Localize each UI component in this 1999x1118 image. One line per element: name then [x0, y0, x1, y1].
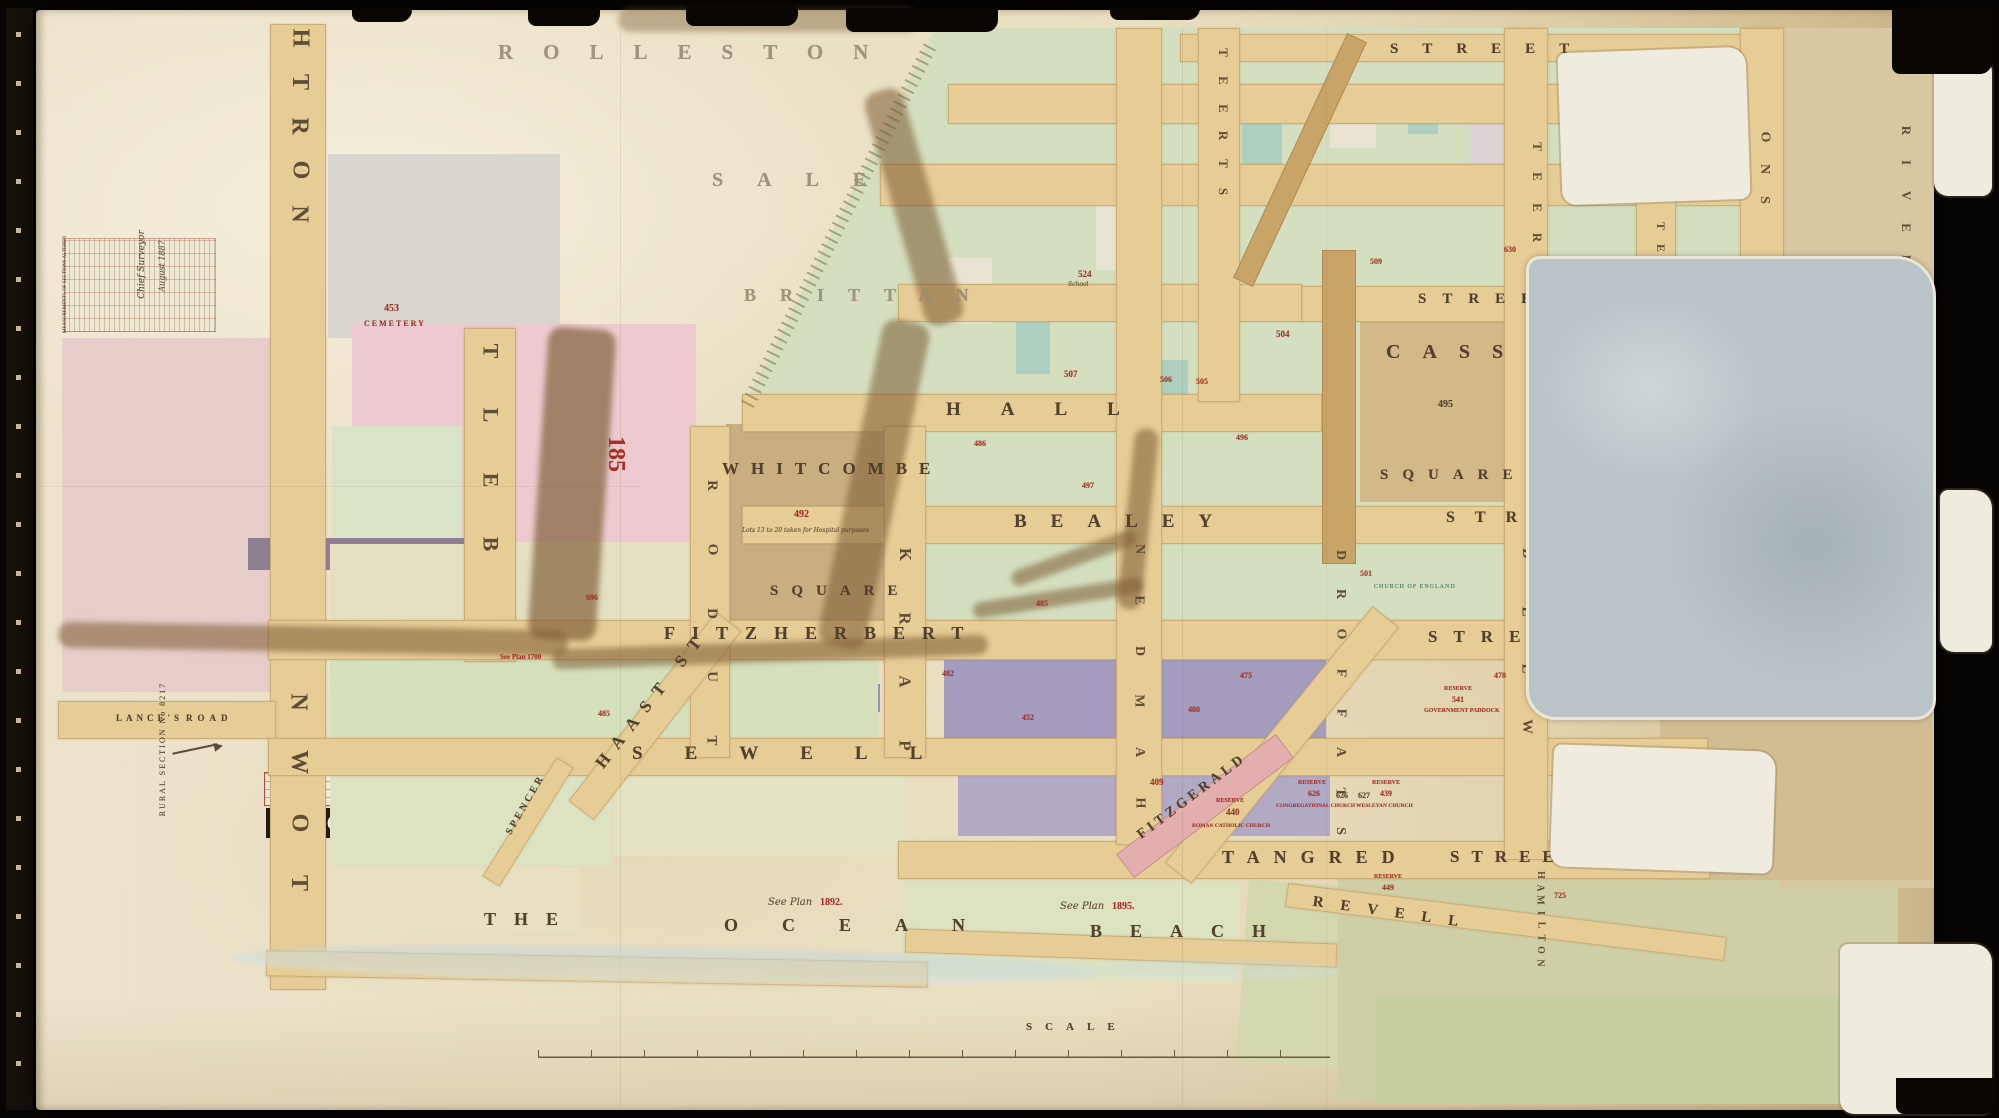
block-number: 449: [1382, 884, 1394, 892]
vertical-letter: R: [1900, 126, 1913, 135]
vertical-letter: F: [1333, 669, 1347, 678]
lances-road-label-2: ROAD: [186, 714, 233, 723]
chief-surveyor-signature: Chief Surveyor: [138, 230, 147, 299]
vertical-letter: B: [479, 537, 501, 552]
brittan-street-label: BRITTAN: [744, 286, 993, 304]
river-label: RIVER: [1894, 124, 1919, 266]
hamilton-street-label: HAMILTON: [1529, 870, 1551, 968]
vertical-letter: E: [1217, 76, 1230, 85]
block-number: 696: [586, 594, 598, 602]
green-rows-a: [332, 426, 462, 544]
beach-wash: [1098, 960, 1340, 980]
vertical-letter: O: [1757, 132, 1771, 143]
cemetery-label: CEMETERY: [364, 320, 426, 328]
table-title: MEASUREMENTS OF SECTIONS ALTERED: [63, 236, 68, 333]
block-number: 485: [1036, 600, 1048, 608]
vertical-letter: T: [1217, 48, 1230, 57]
block-number: 524: [1078, 270, 1092, 279]
vertical-letter: I: [1535, 911, 1545, 915]
block-number: 626: [1336, 792, 1348, 800]
vertical-letter: R: [704, 480, 719, 491]
vertical-letter: O: [288, 161, 312, 180]
see-plan-note: See Plan: [768, 898, 812, 908]
block-number: 453: [384, 304, 399, 314]
scale-bar: [538, 1050, 1330, 1058]
damage-white-edge: [1934, 54, 1992, 196]
vertical-letter: N: [288, 205, 312, 222]
torn-edge-bite: [352, 8, 412, 22]
block-185-number: 185: [604, 436, 628, 472]
vertical-letter: T: [1531, 142, 1544, 151]
vertical-letter: H: [1535, 871, 1545, 879]
vertical-letter: T: [1535, 934, 1545, 941]
street-label-vertical: TEERTS: [1211, 46, 1236, 198]
north-belt-label: HTRON: [282, 26, 318, 226]
vertical-letter: U: [704, 671, 719, 682]
cass-square-label: CASS: [1386, 342, 1525, 362]
block-number: 475: [1240, 672, 1252, 680]
vertical-letter: L: [479, 408, 501, 423]
vertical-letter: T: [1655, 222, 1667, 230]
vertical-letter: E: [1531, 203, 1544, 212]
block-number: 486: [974, 440, 986, 448]
belt-road-label: TLEB: [473, 340, 507, 555]
vertical-letter: T: [1217, 159, 1230, 168]
block-number: 440: [1226, 808, 1240, 817]
vertical-letter: O: [287, 813, 311, 832]
see-plan-note: See Plan: [1060, 902, 1104, 912]
block-number: 627: [1358, 792, 1370, 800]
block-number: 480: [1188, 706, 1200, 714]
reserve-note: RESERVE: [1374, 874, 1402, 880]
ocean-beach-label-ocean: OCEAN: [724, 916, 1009, 934]
vertical-letter: E: [1217, 104, 1230, 113]
hall-street-label: HALL: [946, 400, 1160, 419]
vertical-letter: E: [1132, 595, 1146, 604]
reserve-note: ROMAN CATHOLIC CHURCH: [1192, 824, 1270, 830]
reserve-note: RESERVE: [1298, 780, 1326, 786]
vertical-letter: S: [1757, 196, 1771, 204]
vertical-letter: T: [704, 735, 719, 745]
vertical-letter: [1757, 230, 1771, 234]
block-number: 492: [794, 510, 809, 520]
cemetery-block: [328, 154, 560, 338]
vertical-letter: N: [287, 693, 311, 710]
vertical-letter: O: [1535, 946, 1545, 954]
map-binding-edge: [6, 8, 33, 1110]
block-number: 409: [1150, 778, 1164, 787]
vertical-letter: E: [1900, 223, 1913, 232]
rural-section-label: RURAL SECTION No 8217: [159, 682, 167, 816]
vertical-letter: W: [287, 750, 311, 774]
block-number: 504: [1276, 330, 1290, 339]
torn-edge-bite: [1896, 1078, 1996, 1114]
torn-edge-bite: [686, 6, 798, 26]
vertical-letter: R: [1217, 131, 1230, 140]
vertical-letter: S: [1217, 188, 1230, 195]
vertical-letter: I: [1900, 160, 1913, 165]
see-plan-year: 1895.: [1112, 902, 1135, 912]
grey-block: [1470, 118, 1506, 170]
damage-white-right: [1550, 744, 1776, 874]
scale-label: SCALE: [1026, 1022, 1128, 1033]
vertical-letter: V: [1900, 190, 1913, 199]
vertical-letter: R: [288, 117, 312, 134]
reserve-note: RESERVE: [1372, 780, 1400, 786]
vertical-letter: F: [1333, 708, 1347, 717]
stafford-street-north: [1322, 250, 1356, 564]
block-number: 478: [1494, 672, 1506, 680]
vertical-letter: E: [1531, 173, 1544, 182]
vertical-letter: M: [1132, 695, 1146, 708]
bealey-street-label: BEALEY: [1014, 512, 1236, 531]
vertical-letter: P: [897, 740, 914, 750]
tangred-street-label: TANGRED: [1222, 848, 1409, 866]
block-number: 452: [1022, 714, 1034, 722]
vertical-letter: S: [1333, 827, 1347, 835]
torn-edge-bite: [846, 8, 998, 32]
block-number: 497: [1082, 482, 1094, 490]
vertical-letter: D: [1132, 646, 1146, 656]
vertical-letter: E: [479, 472, 501, 487]
block-number: 505: [1196, 378, 1208, 386]
map-photo-stage: 8706 ROLLESTONSALEBRITTANSTREETSTREETHAL…: [0, 0, 1999, 1118]
reserve-note: CONGREGATIONAL CHURCH: [1276, 804, 1355, 810]
block-number: 725: [1554, 892, 1566, 900]
vertical-letter: W: [1519, 719, 1534, 734]
vertical-letter: O: [704, 543, 719, 555]
ocean-beach-label-beach: BEACH: [1090, 922, 1294, 940]
se-bottom-strip: [1376, 998, 1916, 1104]
vertical-letter: D: [704, 608, 719, 619]
torn-edge-bite: [528, 8, 600, 26]
block-number: 626: [1308, 790, 1320, 798]
torn-edge-bite: [1110, 8, 1200, 20]
tudor-street-label: RODUT: [698, 478, 725, 748]
sewell-street: [268, 738, 1708, 776]
vertical-letter: D: [1333, 550, 1347, 560]
damage-white-top-right: [1557, 47, 1750, 205]
damage-blue-grey: [1526, 256, 1936, 720]
vertical-letter: N: [1132, 544, 1146, 554]
hamden-street-label: NEDMAH: [1126, 542, 1152, 810]
torn-edge-bite: [1892, 8, 1992, 74]
vertical-letter: E: [1655, 244, 1667, 252]
church-note: CHURCH OF ENGLAND: [1374, 584, 1456, 590]
reserve-note: RESERVE: [1216, 798, 1244, 804]
ocean-beach-label-the: THE: [484, 910, 576, 928]
teal-block: [1016, 314, 1050, 374]
vertical-letter: A: [1535, 884, 1545, 891]
map-paper-sheet: 8706 ROLLESTONSALEBRITTANSTREETSTREETHAL…: [36, 10, 1934, 1110]
reserve-note: GOVERNMENT PADDOCK: [1424, 708, 1500, 714]
vertical-letter: N: [1535, 959, 1545, 966]
see-plan-year: 1892.: [820, 898, 843, 908]
damage-white-edge: [1940, 490, 1992, 652]
vertical-letter: N: [1757, 164, 1771, 174]
see-plan-note: See Plan 1700: [500, 654, 541, 661]
block-number: 630: [1504, 246, 1516, 254]
reserve-note: WESLEYAN CHURCH: [1356, 804, 1413, 810]
fold-line: [620, 28, 621, 1106]
fold-line: [1182, 26, 1183, 1106]
vertical-letter: M: [1535, 895, 1545, 904]
town-belt-label: NWOT: [281, 690, 317, 895]
vertical-letter: T: [479, 344, 501, 359]
school-note: School: [1068, 282, 1088, 288]
vertical-letter: H: [288, 29, 312, 48]
park-street-label: KRAP: [891, 546, 920, 754]
vertical-letter: O: [1333, 628, 1347, 639]
vertical-letter: A: [897, 676, 914, 688]
vertical-letter: A: [1132, 747, 1146, 757]
block-number: 501: [1360, 570, 1372, 578]
block-number: 482: [942, 670, 954, 678]
block-number: 439: [1380, 790, 1392, 798]
vertical-letter: R: [1333, 589, 1347, 599]
sale-street-label: SALE: [712, 170, 900, 190]
block-number: 509: [1370, 258, 1382, 266]
arrow-mark: [172, 743, 217, 755]
vertical-letter: R: [897, 612, 914, 624]
vertical-letter: A: [1333, 747, 1347, 757]
rolleston-street-label: ROLLESTON: [498, 42, 898, 63]
vertical-letter: R: [1531, 233, 1544, 242]
cass-square-label-2: SQUARE: [1380, 468, 1527, 483]
lances-road-label: LANCE'S: [116, 714, 183, 723]
hospital-note: Lots 13 to 20 taken for Hospital purpose…: [742, 528, 869, 534]
signature-date: August 1887: [159, 240, 167, 291]
vertical-letter: T: [287, 875, 311, 891]
block-number: 507: [1064, 370, 1078, 379]
beach-lots-a: [614, 762, 906, 856]
block-number: 506: [1160, 376, 1172, 384]
vertical-letter: L: [1535, 922, 1545, 929]
vertical-letter: H: [1132, 798, 1146, 809]
fold-line-horizontal: [40, 486, 640, 487]
vertical-letter: T: [288, 74, 312, 90]
whitcombe-square-label: WHITCOMBE: [722, 460, 942, 477]
whitcombe-square-label-2: SQUARE: [770, 584, 911, 599]
block-number: 541: [1452, 696, 1464, 704]
block-number: 496: [1236, 434, 1248, 442]
block-number: 495: [1438, 400, 1453, 410]
block-number: 485: [598, 710, 610, 718]
vertical-letter: K: [897, 548, 914, 561]
reserve-note: RESERVE: [1444, 686, 1472, 692]
